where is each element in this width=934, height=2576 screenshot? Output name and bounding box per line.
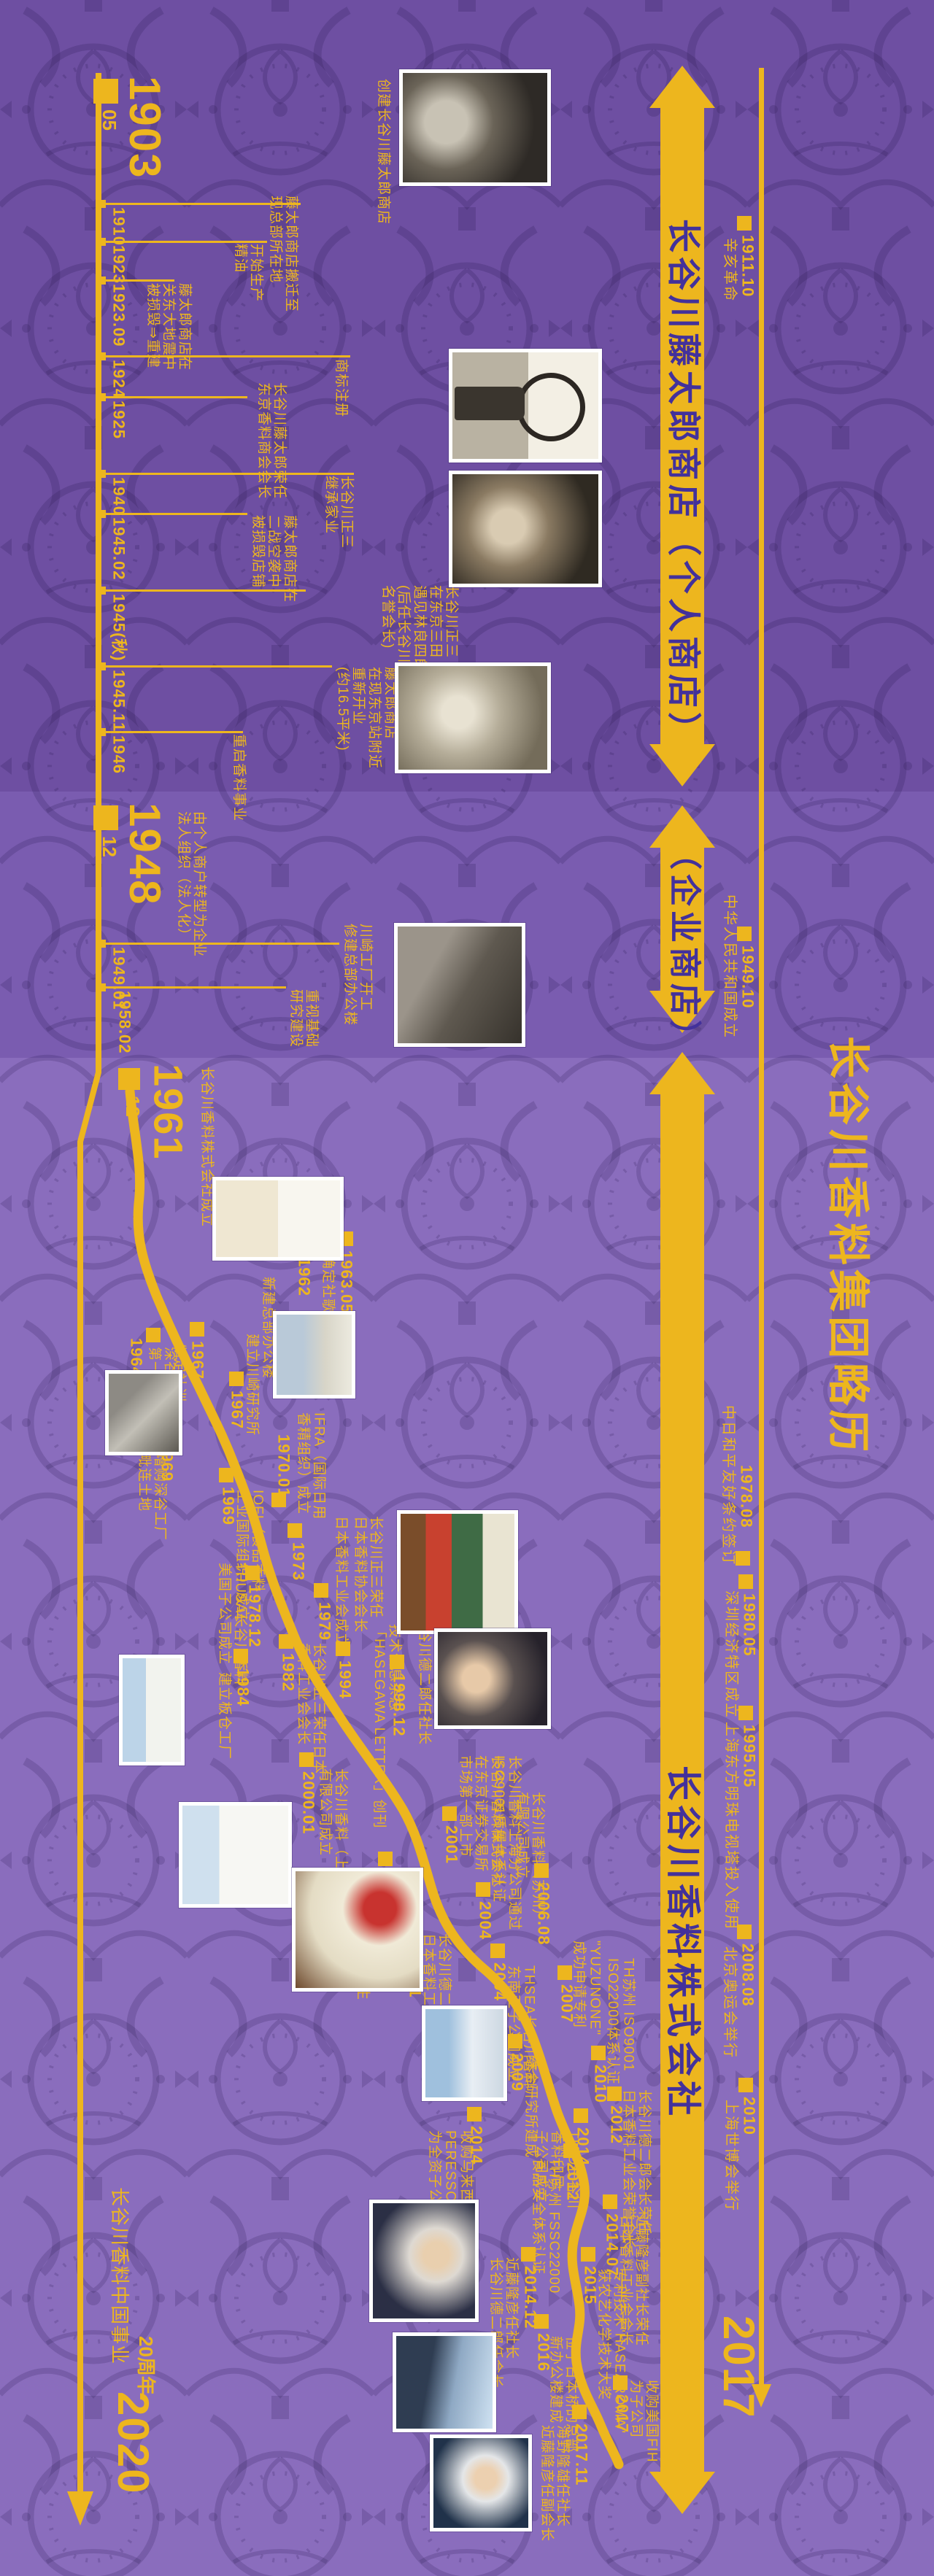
tick-1923: [101, 241, 267, 243]
event-year: 1925: [109, 401, 128, 439]
event-year: 1924: [109, 360, 128, 398]
footer-line2: 20周年: [134, 2336, 156, 2395]
event-year: 1923.09: [109, 284, 128, 347]
event-desc: 重视基础 研究建设: [287, 989, 320, 1048]
event-marker: [574, 2108, 588, 2123]
event-marker: [613, 2375, 628, 2390]
era1-label: 长谷川藤太郎商店（个人商店）: [664, 219, 703, 750]
era2-label: （企业商店）: [665, 838, 703, 1056]
era3-label: 长谷川香料株式会社: [663, 1765, 703, 2120]
event-marker: [581, 2247, 595, 2262]
era3-arrowhead-top: [649, 1052, 715, 1094]
tick-1923-09: [101, 279, 174, 282]
event-marker: [219, 1468, 233, 1482]
event-marker: [279, 1634, 293, 1649]
event-desc: 建立板仓工厂: [216, 1672, 232, 1760]
context-line: [759, 68, 764, 2388]
event-desc: THID长谷川 香料印尼 子公司成立: [533, 2130, 581, 2209]
milestone-1903-month: 05: [98, 109, 120, 131]
milestone-1903-desc: 创建长谷川藤太郎商店: [375, 79, 391, 225]
event-desc: 商标注册: [333, 359, 349, 417]
event-desc: 增购深谷工厂 毗连土地: [136, 1453, 168, 1541]
timeline-poster: 长谷川香料集团略历 长谷川藤太郎商店（个人商店） （企业商店） 长谷川香料株式会…: [0, 0, 934, 2576]
event-marker: [534, 2314, 549, 2329]
photo-bottle-and-trademark: [449, 349, 602, 463]
era3-end-year: 2017: [714, 2316, 764, 2418]
event-marker: [607, 2086, 622, 2101]
event-year: 2017.11: [572, 2424, 590, 2486]
photo-suzhou-plant: [422, 2006, 507, 2101]
event-marker: [591, 2046, 606, 2060]
event-desc: 藤太郎商店在 关东大地震中 被损毁⇒重建: [144, 283, 193, 371]
event-marker: [190, 1322, 204, 1337]
event-marker: [287, 1523, 302, 1538]
event-desc: 海野隆雄任社长 近藤隆彦任副会长: [539, 2425, 571, 2542]
photo-unno-portrait: [430, 2434, 532, 2531]
tick-1924: [101, 355, 350, 357]
milestone-1948-year: 1948: [120, 802, 170, 905]
perfume-bottle-silhouette: [455, 387, 525, 420]
event-year: 1979: [315, 1602, 333, 1641]
photo-company-song-sheets: [212, 1177, 344, 1261]
era1-arrowhead-top: [649, 66, 715, 108]
event-marker: [521, 2247, 536, 2262]
milestone-1961-year: 1961: [144, 1064, 191, 1161]
tick-1958-02: [101, 986, 286, 989]
photo-fukaya-plant-aerial: [105, 1370, 182, 1455]
event-marker: [299, 1752, 314, 1767]
event-marker: [314, 1583, 328, 1598]
era3-arrowhead-bottom: [649, 2472, 715, 2514]
context-marker: [738, 1574, 753, 1589]
context-marker: [736, 1551, 750, 1566]
event-year: 1970.01: [274, 1434, 293, 1498]
event-year: 1946: [109, 735, 128, 774]
event-year: 1945.02: [109, 517, 128, 581]
photo-tokujiro-portrait: [434, 1628, 551, 1729]
event-year: 1958.02: [115, 991, 134, 1054]
event-year: 1945(秋): [109, 594, 128, 662]
event-marker: [572, 2405, 587, 2419]
context-year: 1980.05: [740, 1593, 758, 1657]
context-desc: 中日和平友好条约签订: [719, 1405, 736, 1566]
event-year: 1998.12: [390, 1674, 408, 1737]
context-marker: [737, 927, 752, 941]
tick-1940: [101, 473, 354, 475]
photo-shanghai-plant: [179, 1802, 292, 1908]
context-desc: 深圳经济特区成立: [722, 1590, 739, 1719]
event-marker: [229, 1372, 244, 1386]
event-year: 2000.01: [299, 1771, 317, 1835]
event-desc: 长谷川香料（苏州） 有限公司成立: [514, 1792, 546, 1923]
footer-line1: 长谷川香料中国事业: [108, 2187, 130, 2364]
event-year: 1994: [336, 1660, 354, 1699]
photo-kawasaki-factory-interior: [394, 923, 525, 1047]
milestone-1948-marker: [93, 805, 118, 830]
milestone-1961-month: 12: [121, 1096, 143, 1117]
context-year: 1911.10: [738, 235, 757, 297]
event-desc: 日本香料工业会成立: [333, 1516, 349, 1647]
event-desc: 重启香料事业: [231, 734, 247, 821]
event-marker: [390, 1655, 404, 1669]
tick-1945-autumn: [101, 589, 306, 592]
event-marker: [603, 2194, 617, 2209]
context-marker: [737, 216, 752, 231]
context-marker: [738, 1706, 753, 1720]
event-year: 1973: [289, 1542, 307, 1581]
context-year: 2010: [740, 2097, 758, 2135]
photo-shozo-portrait: [449, 471, 602, 587]
milestone-1948-desc: 由个人商户转型为企业 法人组织（法人化）: [175, 811, 207, 957]
tick-1945-11: [101, 665, 332, 668]
context-desc: 北京奥运会举行: [721, 1946, 738, 2059]
context-desc: 上海东方明珠电视塔投入使用: [722, 1722, 739, 1930]
context-year: 2008.08: [738, 1943, 757, 2007]
tick-1949-01: [101, 943, 339, 945]
event-year: 1910: [109, 207, 128, 246]
event-marker: [490, 1943, 505, 1958]
event-marker: [557, 1965, 572, 1980]
event-year: 1967: [188, 1341, 207, 1380]
event-desc: 藤太郎商店搬迁至 现总部所在地: [267, 196, 299, 312]
tick-1946: [101, 731, 243, 733]
milestone-1948-month: 12: [98, 836, 120, 857]
event-year: 1923: [109, 245, 128, 284]
event-desc: 长谷川藤太郎荣任 东京香料商会会长: [255, 382, 287, 499]
event-desc: 开始生产 精油: [232, 244, 264, 302]
event-desc: IFRA（国际日用 香精组织）成立: [295, 1412, 327, 1520]
event-marker: [476, 1882, 490, 1897]
context-desc: 上海世博会举行: [722, 2100, 739, 2212]
tick-1945-02: [101, 513, 247, 515]
event-marker: [146, 1328, 161, 1342]
event-marker: [336, 1641, 350, 1656]
event-desc: "YUZUNONE" 成功申请专利: [571, 1941, 603, 2035]
footer-year: 2020: [108, 2391, 158, 2494]
event-marker: [378, 1852, 393, 1866]
event-desc: 川崎工厂开工 修建总部办公楼: [341, 924, 374, 1026]
photo-nihonbashi-hq-building: [393, 2332, 496, 2432]
page-title: 长谷川香料集团略历: [823, 1036, 872, 1456]
milestone-1903-marker: [93, 79, 118, 104]
event-year: 1962: [295, 1258, 313, 1296]
photo-kondo-portrait: [369, 2200, 479, 2322]
event-desc: 长谷川正三 继承家业: [323, 476, 355, 549]
context-marker: [738, 2078, 753, 2092]
milestone-1903-year: 1903: [120, 76, 170, 179]
event-marker: [442, 1806, 457, 1821]
context-desc: 辛亥革命: [721, 238, 738, 302]
context-marker: [737, 1925, 752, 1939]
event-marker: [233, 1649, 248, 1663]
event-desc: TH苏州 ISO9001 ISO22000体系认证: [604, 1958, 636, 2085]
event-marker: [467, 2107, 482, 2121]
event-desc: 建立川崎研究所: [244, 1334, 260, 1436]
photo-itakura-plant: [119, 1655, 185, 1765]
event-desc: 确定社歌: [320, 1255, 336, 1313]
tick-1925: [101, 396, 247, 398]
context-year: 1949.10: [738, 945, 757, 1009]
context-year: 1995.05: [740, 1725, 758, 1788]
context-desc: 中华人民共和国成立: [721, 894, 738, 1039]
era1-arrowhead-bottom: [649, 744, 715, 786]
event-year: 1984: [233, 1668, 252, 1706]
photo-founder-portrait: [399, 69, 551, 186]
event-marker: [508, 2034, 522, 2049]
event-desc: 收购美国FIH 为子公司: [628, 2380, 660, 2463]
trademark-logo-circle: [517, 373, 585, 441]
milestone-1961-marker: [118, 1068, 140, 1090]
photo-hasegawa-letter-magazines: [397, 1510, 518, 1634]
photo-ranbiki-book: [292, 1868, 423, 1992]
event-year: 1940: [109, 477, 128, 516]
event-year: 1945.11: [109, 670, 128, 732]
event-desc: 长谷川正三荣任 日本香料协会会长: [352, 1516, 384, 1633]
photo-kawasaki-lab-building: [273, 1311, 355, 1399]
event-desc: 藤太郎商店 在现东京站附近 重新开业 (约16.5平米): [334, 667, 398, 769]
photo-man-white-suit: [395, 662, 551, 773]
context-year: 1978.08: [737, 1465, 755, 1528]
